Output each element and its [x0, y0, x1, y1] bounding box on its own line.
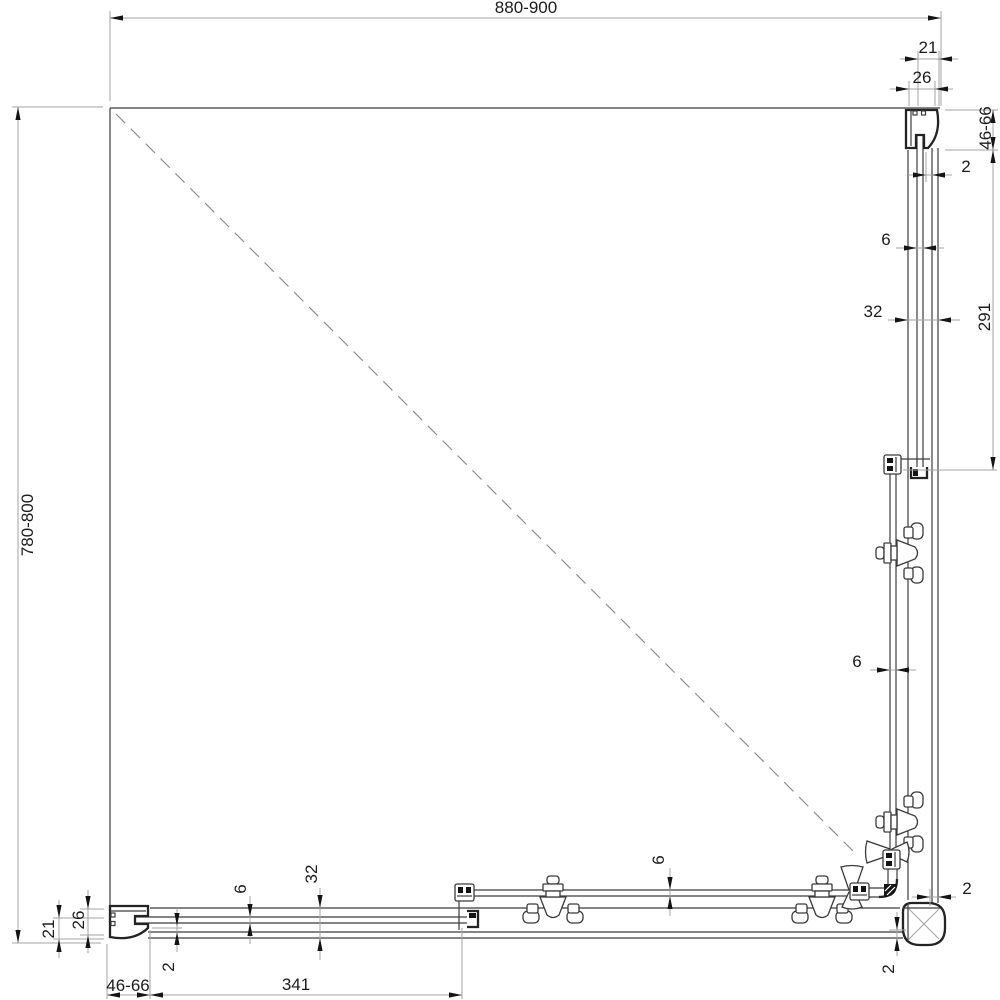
dimension-right-glass-door: 6 [852, 652, 916, 673]
shower-enclosure-plan-drawing: 880-900 780-800 21 26 46-66 2 6 [0, 0, 1000, 1000]
dim-label-width-top: 880-900 [495, 0, 557, 17]
corner-connector [869, 869, 897, 897]
bottom-wall-assembly [110, 866, 903, 939]
dim-label-right-glass-door: 6 [852, 652, 861, 671]
dimension-depth-left: 780-800 [12, 107, 103, 943]
dim-label-bottom-fixed-length: 341 [282, 975, 310, 994]
dim-label-bottom-adjust: 46-66 [106, 976, 149, 995]
dimension-right-adjust: 46-66 [945, 106, 998, 150]
dim-label-right-profile-32: 32 [864, 302, 883, 321]
dim-label-bottom-gap-left: 2 [159, 962, 178, 971]
corner-post [903, 903, 945, 945]
dim-label-left-profile-26: 26 [69, 911, 88, 930]
dimension-right-profile-32: 32 [864, 302, 960, 323]
dim-label-right-adjust: 46-66 [976, 106, 995, 149]
dim-label-top-profile-21: 21 [919, 38, 938, 57]
dimension-left-profile-26: 26 [69, 890, 104, 953]
dim-label-left-profile-21: 21 [39, 920, 58, 939]
dim-label-corner-gap-right: 2 [962, 879, 971, 898]
dimension-bottom-glass-door: 6 [649, 855, 673, 916]
dimension-bottom-profile-32: 32 [302, 865, 323, 960]
dim-label-depth-left: 780-800 [18, 494, 37, 556]
dim-label-bottom-profile-32: 32 [302, 865, 321, 884]
dim-label-right-glass-fixed: 6 [881, 230, 890, 249]
dim-label-top-profile-26: 26 [913, 68, 932, 87]
dim-label-bottom-glass-door: 6 [649, 855, 668, 864]
dimension-right-glass-fixed: 6 [881, 230, 944, 251]
dimension-bottom-glass-fixed: 6 [231, 884, 253, 944]
dimension-width-top: 880-900 [110, 0, 941, 106]
right-wall-assembly [866, 110, 939, 903]
room-walls [110, 108, 940, 906]
dim-label-right-gap-top: 2 [961, 157, 970, 176]
dimension-top-profile-26: 26 [890, 68, 953, 106]
dim-label-corner-gap-bottom: 2 [879, 964, 898, 973]
dimension-bottom-adjust: 46-66 [106, 930, 150, 999]
diagonal-reference-line [116, 114, 858, 856]
dimension-bottom-fixed-length: 341 [150, 928, 462, 999]
dim-label-right-fixed-length: 291 [975, 303, 994, 331]
technical-drawing-page: 880-900 780-800 21 26 46-66 2 6 [0, 0, 1000, 1000]
dim-label-bottom-glass-fixed: 6 [231, 884, 250, 893]
